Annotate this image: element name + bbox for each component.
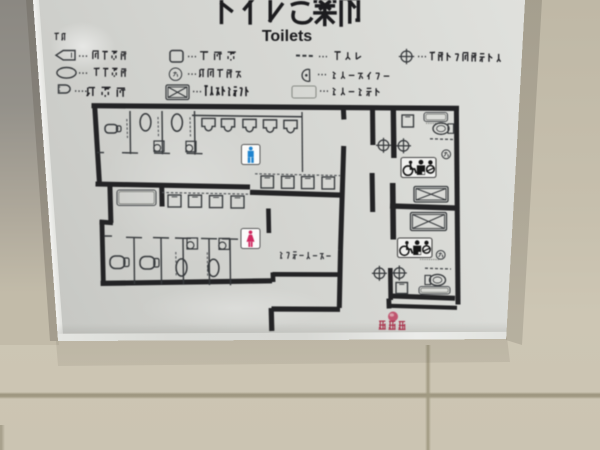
svg-text:Toilets: Toilets	[262, 28, 312, 45]
